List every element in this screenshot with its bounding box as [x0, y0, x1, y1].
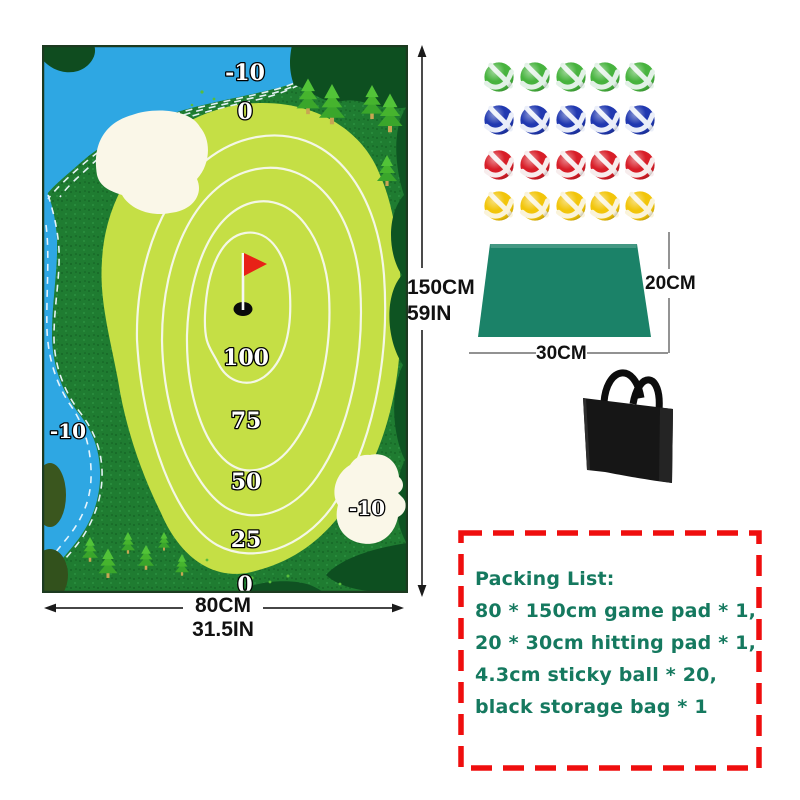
sticky-ball-blue — [590, 105, 619, 134]
label-right-bunker: -10 — [349, 496, 385, 520]
hitting-pad-top-edge — [490, 244, 637, 248]
arrow-left-icon — [44, 604, 56, 613]
packing-list-item: 20 * 30cm hitting pad * 1, — [475, 627, 750, 659]
packing-list-text: Packing List: 80 * 150cm game pad * 1, 2… — [475, 563, 750, 723]
sticky-ball-red — [556, 150, 585, 179]
sticky-ball-yellow — [484, 191, 513, 220]
mat-width-in: 31.5IN — [153, 618, 293, 642]
sticky-ball-yellow — [556, 191, 585, 220]
label-100: 100 — [223, 345, 269, 371]
mat-width-label: 80CM 31.5IN — [153, 594, 293, 642]
packing-list-item: black storage bag * 1 — [475, 691, 750, 723]
label-75: 75 — [231, 408, 262, 434]
label-left-water: -10 — [50, 419, 86, 443]
label-50: 50 — [231, 469, 262, 495]
bag-side-fold — [659, 408, 673, 484]
packing-list-item: 4.3cm sticky ball * 20, — [475, 659, 750, 691]
label-bottom-rough: 0 — [237, 572, 252, 593]
sticky-ball-yellow — [590, 191, 619, 220]
packing-list-title: Packing List: — [475, 563, 750, 595]
packing-list: Packing List: 80 * 150cm game pad * 1, 2… — [458, 530, 762, 771]
sticky-ball-blue — [556, 105, 585, 134]
sticky-ball-blue — [484, 105, 513, 134]
arrow-up-icon — [418, 45, 427, 57]
sticky-ball-yellow — [625, 191, 654, 220]
sticky-ball-green — [484, 62, 513, 91]
sticky-ball-yellow — [520, 191, 549, 220]
sticky-ball-red — [520, 150, 549, 179]
mat-width-cm: 80CM — [153, 594, 293, 618]
game-mat: -10 0 100 75 50 25 0 -10 -10 — [42, 45, 408, 593]
storage-bag — [565, 348, 690, 498]
arrow-right-icon — [392, 604, 404, 613]
label-upper-rough: 0 — [237, 99, 252, 125]
sticky-ball-green — [556, 62, 585, 91]
sticky-ball-green — [625, 62, 654, 91]
sticky-ball-red — [625, 150, 654, 179]
label-top-water: -10 — [225, 60, 265, 86]
sticky-ball-green — [520, 62, 549, 91]
sticky-ball-red — [484, 150, 513, 179]
sticky-ball-red — [590, 150, 619, 179]
product-infographic: -10 0 100 75 50 25 0 -10 -10 — [0, 0, 800, 800]
sticky-ball-green — [590, 62, 619, 91]
label-25: 25 — [231, 527, 262, 553]
arrow-down-icon — [418, 585, 427, 597]
hitting-pad — [455, 222, 705, 362]
sticky-ball-blue — [625, 105, 654, 134]
packing-list-item: 80 * 150cm game pad * 1, — [475, 595, 750, 627]
hitting-pad-surface — [478, 244, 651, 337]
sticky-ball-blue — [520, 105, 549, 134]
sticky-balls-grid — [482, 55, 658, 225]
